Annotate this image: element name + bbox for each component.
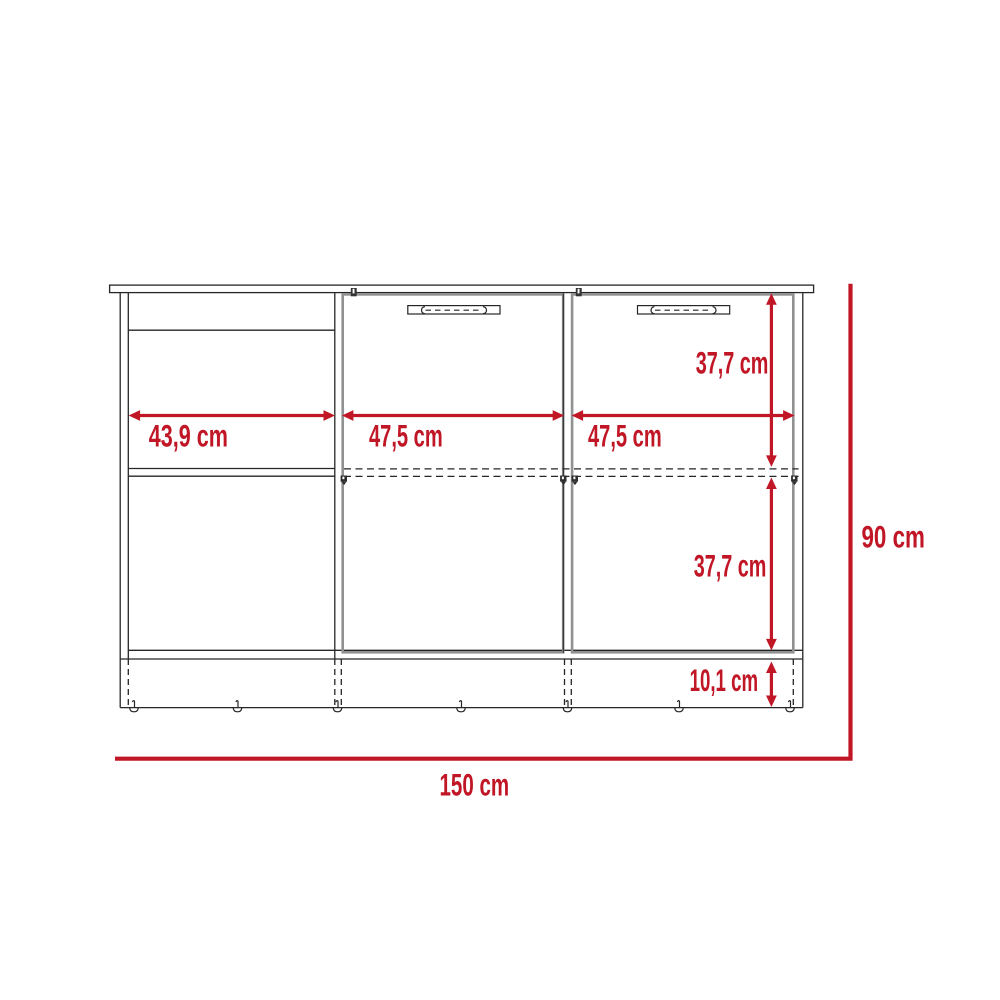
svg-text:37,7 cm: 37,7 cm bbox=[694, 548, 767, 584]
svg-text:47,5 cm: 47,5 cm bbox=[588, 418, 662, 454]
svg-text:47,5 cm: 47,5 cm bbox=[369, 418, 443, 454]
svg-text:10,1 cm: 10,1 cm bbox=[690, 664, 758, 698]
svg-text:37,7 cm: 37,7 cm bbox=[696, 345, 769, 381]
svg-text:43,9 cm: 43,9 cm bbox=[149, 418, 228, 453]
svg-text:150 cm: 150 cm bbox=[440, 767, 510, 803]
svg-text:90 cm: 90 cm bbox=[862, 519, 925, 555]
